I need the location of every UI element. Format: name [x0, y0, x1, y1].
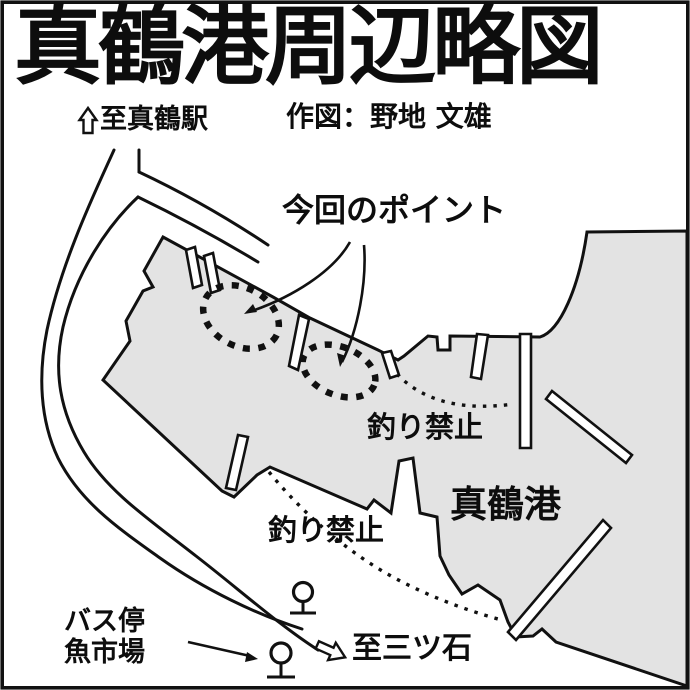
to-mitsuishi-arrow-icon	[313, 636, 349, 666]
credit-label: 作図：野地 文雄	[286, 103, 492, 131]
bus-stop-symbol-1	[294, 583, 313, 602]
fishing-point-label: 今回のポイント	[282, 194, 506, 226]
bus-stop-label-line2: 魚市場	[64, 637, 145, 668]
bus-stop-label: バス停 魚市場	[64, 606, 145, 668]
bus-stop-label-line1: バス停	[64, 606, 145, 637]
no-fishing-label-1: 釣り禁止	[367, 413, 483, 442]
port-name-label: 真鶴港	[450, 486, 561, 523]
page-title: 真鶴港周辺略図	[14, 4, 599, 90]
no-fishing-label-2: 釣り禁止	[268, 516, 384, 545]
harbor-water-area	[103, 231, 687, 686]
to-station-label: 至真鶴駅	[100, 106, 208, 133]
bus-stop-pointer-arrow-head	[245, 652, 258, 662]
to-station-up-arrow-icon	[80, 108, 97, 133]
bus-stop-pointer-arrow-icon	[188, 642, 250, 656]
cape-long-pier	[520, 334, 531, 448]
map-page: 真鶴港周辺略図 作図：野地 文雄 至真鶴駅 今回のポイント 釣り禁止 釣り禁止 …	[0, 0, 690, 690]
bus-stop-symbol-2	[271, 643, 291, 663]
to-mitsuishi-label: 至三ツ石	[352, 634, 472, 664]
